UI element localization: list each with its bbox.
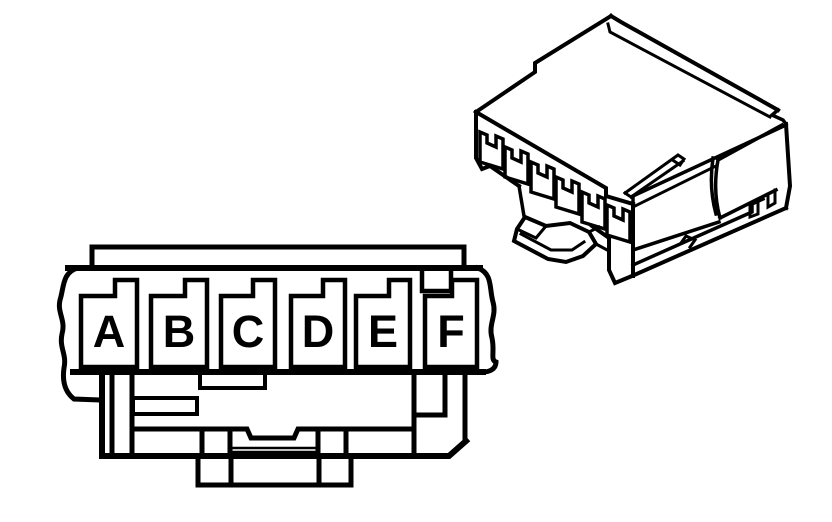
front-view: A B C D E F	[59, 247, 496, 485]
iso-cavity-3	[531, 162, 554, 199]
iso-latch-root-edge	[519, 186, 524, 216]
cavity-label-c: C	[232, 306, 265, 357]
latch-shelf-edge	[132, 429, 414, 438]
connector-diagram-page: A B C D E F	[0, 0, 832, 522]
latch-tab-outline	[198, 456, 351, 485]
iso-leg-edge	[609, 238, 632, 283]
latch-slot-left	[133, 398, 197, 414]
cavity-label-e: E	[368, 306, 398, 357]
connector-diagram: A B C D E F	[0, 0, 832, 522]
iso-ridge-inner-edge	[608, 24, 770, 117]
iso-cavity-6	[607, 205, 630, 242]
latch-spring-lines	[232, 448, 317, 452]
iso-cavity-5	[582, 192, 605, 229]
iso-cavity-2	[505, 147, 528, 184]
iso-cavity-4	[556, 177, 579, 214]
latch-housing-rib-2	[414, 373, 445, 415]
iso-top-left-edge	[476, 16, 611, 112]
housing-right-seal-edge	[478, 268, 496, 372]
latch-slot-upper	[200, 374, 265, 388]
isometric-view	[476, 16, 790, 283]
cavity-label-f: F	[437, 306, 465, 357]
iso-ridge-outer-edge	[611, 16, 778, 110]
cavity-label-b: B	[163, 306, 196, 357]
cavity-label-d: D	[302, 306, 335, 357]
index-key-outline	[422, 268, 451, 291]
cavity-label-a: A	[93, 306, 126, 357]
iso-bottom-inner-rail	[633, 199, 763, 265]
rear-plate-edge	[92, 247, 464, 267]
iso-cavity-1	[480, 132, 503, 169]
latch-housing-left-rib	[112, 372, 132, 455]
iso-latch-lever-pad	[517, 226, 546, 238]
iso-right-edge	[786, 124, 790, 208]
